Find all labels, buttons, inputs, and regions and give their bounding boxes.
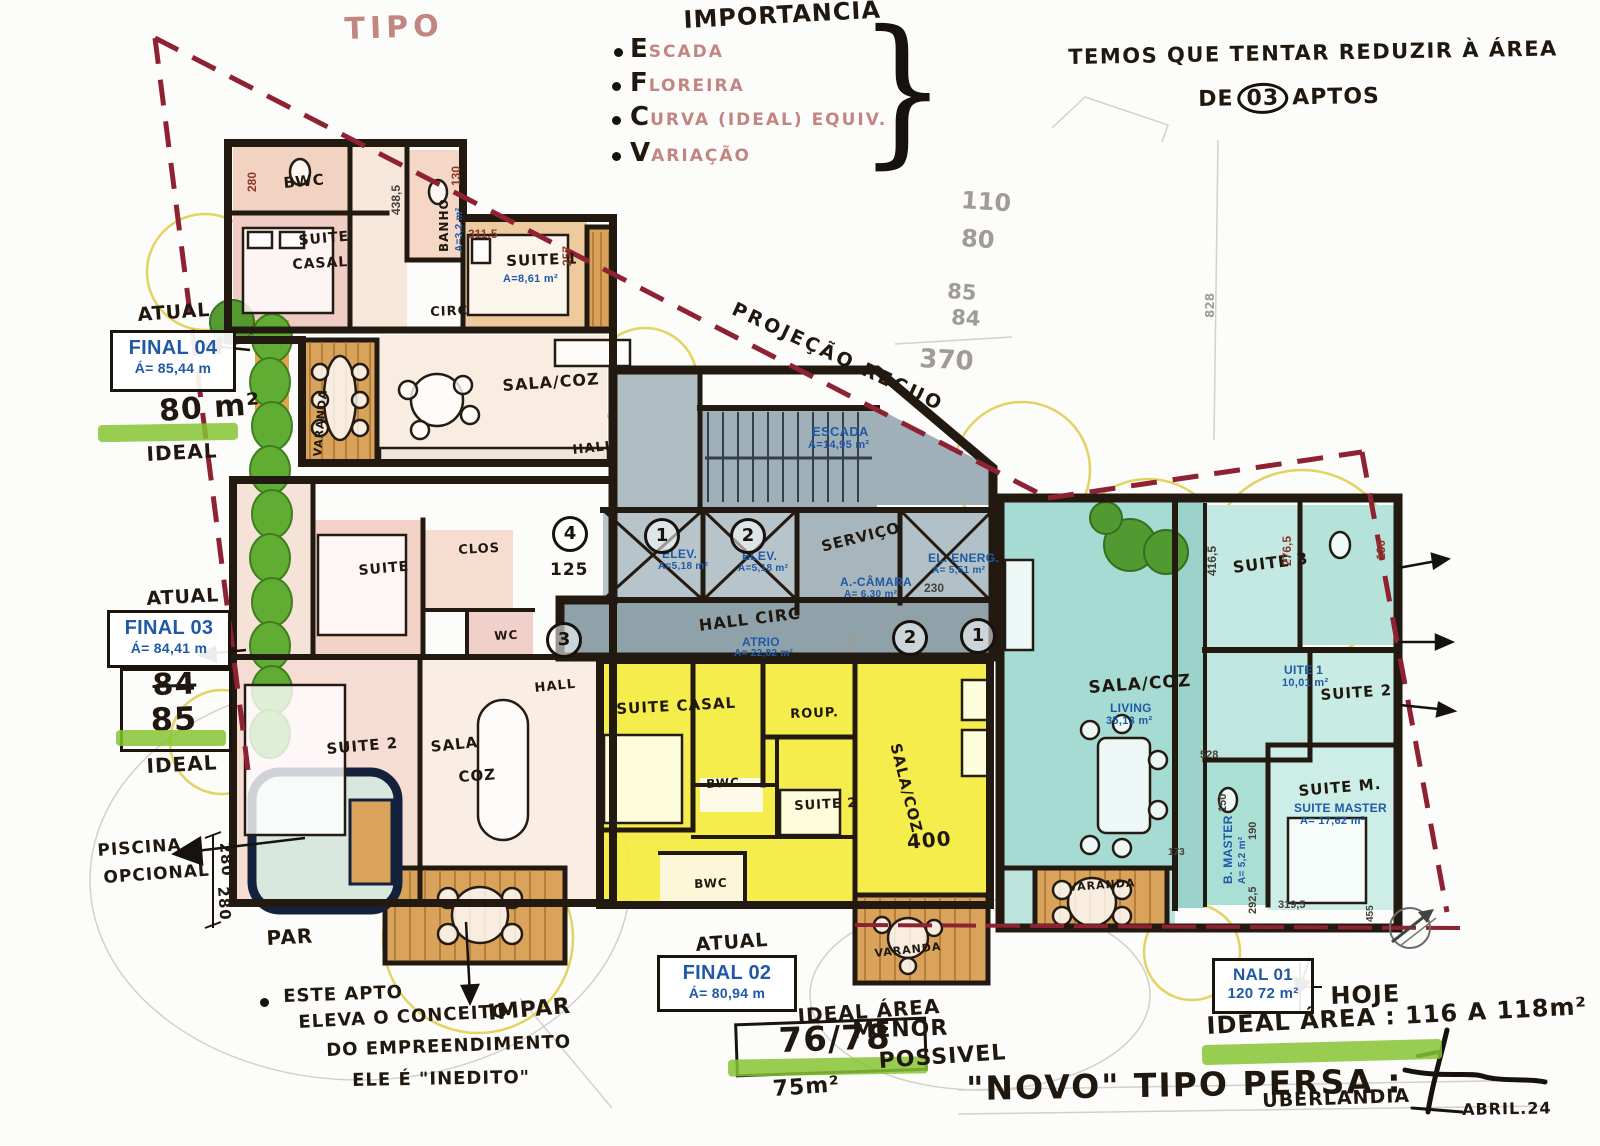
pencil-110: 110 bbox=[960, 188, 1012, 217]
item-letter: V bbox=[630, 138, 651, 168]
tipo-note: TIPO bbox=[344, 11, 444, 46]
item-letter: C bbox=[630, 102, 650, 132]
final04-chip: FINAL 04 Á= 85,44 m bbox=[110, 330, 236, 392]
circled-03: 03 bbox=[1237, 82, 1288, 114]
room-escada-area: A=14,95 m² bbox=[808, 440, 869, 452]
room-elev-2-area: A=5,18 m² bbox=[738, 564, 788, 575]
circled-2b: 2 bbox=[892, 620, 928, 656]
final03-ideal: IDEAL bbox=[146, 752, 218, 777]
circled-1: 1 bbox=[644, 518, 680, 554]
item-word: SCADA bbox=[649, 42, 724, 62]
bullet-dot bbox=[612, 82, 621, 91]
room-elev-1-area: A=5,18 m² bbox=[658, 562, 708, 573]
dim-416: 416,5 bbox=[1206, 546, 1219, 576]
importancia-item-4: VARIAÇÃO bbox=[630, 140, 751, 167]
dim-130a: 130 bbox=[450, 166, 463, 186]
impar-note-1: ESTE APTO bbox=[283, 984, 403, 1007]
room-suite1-01: UITE 1 bbox=[1284, 664, 1323, 677]
bullet-dot bbox=[612, 116, 621, 125]
final01-code: NAL 01 bbox=[1221, 965, 1305, 985]
dim-311: 311,5 bbox=[468, 228, 497, 241]
final04-ideal: IDEAL bbox=[146, 440, 218, 465]
dim-280a: 280 bbox=[246, 172, 259, 192]
room-suite-casal-04b: CASAL bbox=[292, 255, 349, 273]
importancia-item-3: CURVA (IDEAL) EQUIV. bbox=[630, 104, 887, 131]
bullet-dot bbox=[612, 152, 621, 161]
dim-130b: 130 bbox=[1375, 540, 1388, 560]
highlight-bar bbox=[98, 423, 238, 442]
room-suite-master-01: SUITE MASTER bbox=[1294, 802, 1387, 815]
pencil-80: 80 bbox=[960, 226, 995, 253]
sheet-date: ABRIL.24 bbox=[1462, 1100, 1552, 1118]
dim-52: 52 bbox=[846, 635, 858, 650]
room-b-master-01: B. MASTER bbox=[1222, 815, 1235, 884]
room-living-01-area: 35,13 m² bbox=[1106, 716, 1152, 728]
item-letter: E bbox=[630, 34, 649, 64]
room-roup-02: ROUP. bbox=[790, 706, 839, 721]
circled-2: 2 bbox=[730, 518, 766, 554]
par-label: PAR bbox=[266, 926, 314, 949]
room-el-energ: EL. ENERG. bbox=[928, 552, 999, 565]
bullet-dot bbox=[614, 48, 623, 57]
item-word: URVA (IDEAL) EQUIV. bbox=[650, 110, 887, 130]
room-escada: ESCADA bbox=[812, 425, 869, 439]
reduce-pre: DE bbox=[1198, 86, 1234, 112]
room-camara: A.-CÂMARA bbox=[840, 576, 912, 589]
room-suite1-04-area: A=8,61 m² bbox=[503, 274, 558, 286]
importancia-item-2: FLOREIRA bbox=[630, 70, 745, 97]
room-el-energ-area: A= 5,51 m² bbox=[932, 566, 985, 577]
final02-area: Á= 80,94 m bbox=[666, 985, 788, 1001]
room-b-master-01-area: A= 5,2 m² bbox=[1238, 837, 1249, 884]
dim-292: 292,5 bbox=[1248, 886, 1260, 914]
dim-828: 828 bbox=[1204, 293, 1217, 318]
final04-code: FINAL 04 bbox=[119, 337, 227, 360]
pencil-370: 370 bbox=[919, 346, 975, 376]
final03-v1: 84 bbox=[152, 668, 197, 701]
dim-230: 230 bbox=[924, 582, 944, 595]
dim-173: 173 bbox=[1168, 848, 1185, 859]
final02-code: FINAL 02 bbox=[666, 962, 788, 985]
menor-possivel-1: MENOR bbox=[852, 1017, 949, 1043]
room-coz-03: COZ bbox=[458, 767, 497, 785]
dim-257: 257 bbox=[561, 246, 574, 266]
dim-400: 400 bbox=[906, 828, 952, 853]
final03-atual: ATUAL bbox=[146, 586, 220, 610]
room-suite-master-01-area: A= 17,62 m² bbox=[1300, 816, 1365, 828]
room-camara-area: A= 6,30 m² bbox=[844, 590, 897, 601]
importancia-item-1: ESCADA bbox=[630, 36, 724, 63]
room-banho-04-area: A=3,2 m² bbox=[455, 208, 466, 252]
dim-455: 455 bbox=[1366, 905, 1377, 922]
circled-3: 3 bbox=[546, 622, 582, 658]
room-suite2-02: SUITE 2 bbox=[794, 797, 858, 814]
item-word: LOREIRA bbox=[649, 76, 745, 96]
final01-area: 120 72 m² bbox=[1221, 985, 1305, 1002]
brace-icon: } bbox=[858, 6, 947, 175]
dim-276: 276,5 bbox=[1281, 536, 1294, 566]
piscina-dim-2: 280 bbox=[214, 886, 232, 921]
final03-area: Á= 84,41 m bbox=[116, 640, 222, 656]
room-wc-03: WC bbox=[494, 629, 519, 643]
room-circ-04: CIRC bbox=[430, 305, 468, 320]
dim-150a: 150 bbox=[1218, 794, 1230, 812]
dim-319: 319,5 bbox=[1278, 900, 1306, 912]
impar-note-4: ELE É "INEDITO" bbox=[352, 1069, 530, 1091]
pencil-84: 84 bbox=[950, 306, 981, 330]
circled-1b: 1 bbox=[960, 618, 996, 654]
pencil-85: 85 bbox=[946, 280, 977, 304]
final02-chip: FINAL 02 Á= 80,94 m bbox=[657, 955, 797, 1012]
room-banho-04: BANHO bbox=[438, 198, 451, 252]
item-word: ARIAÇÃO bbox=[651, 146, 751, 166]
final03-chip: FINAL 03 Á= 84,41 m bbox=[107, 610, 231, 668]
reduce-note-line2: DE03APTOS bbox=[1198, 81, 1380, 115]
plan-drawing bbox=[0, 0, 1600, 1146]
highlight-bar bbox=[116, 730, 226, 746]
final04-area: Á= 85,44 m bbox=[119, 360, 227, 376]
final03-code: FINAL 03 bbox=[116, 617, 222, 640]
room-atrio-area: A= 22,82 m² bbox=[734, 649, 793, 660]
room-bwc2-02: BWC bbox=[694, 877, 728, 891]
bullet-dot bbox=[260, 998, 269, 1007]
dim-528: 528 bbox=[1200, 750, 1218, 762]
dim-125: 125 bbox=[550, 562, 589, 580]
room-bwc-04: BWC bbox=[283, 172, 325, 191]
reduce-post: APTOS bbox=[1292, 84, 1380, 111]
final02-below: 75m² bbox=[772, 1073, 841, 1101]
final04-ideal-value: 80 m² bbox=[158, 389, 262, 428]
final01-chip: NAL 01 120 72 m² bbox=[1212, 958, 1314, 1014]
dim-438: 438,5 bbox=[390, 185, 403, 215]
room-living-01: LIVING bbox=[1110, 702, 1152, 715]
room-atrio: ATRIO bbox=[742, 636, 780, 649]
item-letter: F bbox=[630, 68, 649, 98]
piscina-dim-1: 280 bbox=[216, 842, 234, 877]
room-clos-03: CLOS bbox=[458, 542, 500, 558]
dim-190: 190 bbox=[1248, 822, 1260, 840]
circled-4: 4 bbox=[552, 516, 588, 552]
floor-plan-sketch: TIPO IMPORTANCIA ESCADA FLOREIRA CURVA (… bbox=[0, 0, 1600, 1146]
room-bwc-02: BWC bbox=[706, 776, 740, 790]
